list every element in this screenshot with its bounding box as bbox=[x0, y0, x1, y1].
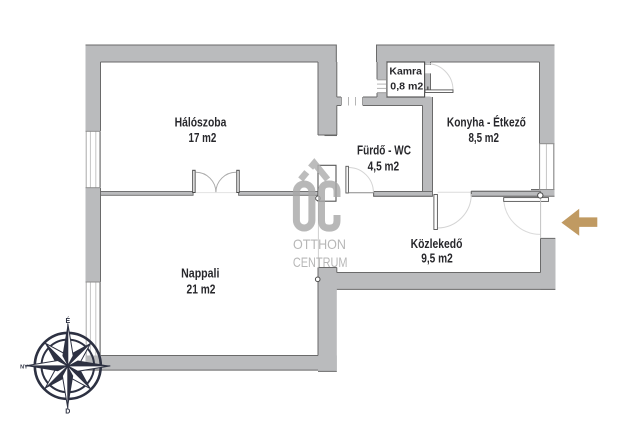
svg-text:Nappali: Nappali bbox=[181, 267, 219, 281]
svg-text:CENTRUM: CENTRUM bbox=[293, 254, 348, 270]
svg-text:9,5 m2: 9,5 m2 bbox=[421, 251, 453, 265]
svg-text:D: D bbox=[65, 409, 70, 416]
svg-text:NY: NY bbox=[20, 365, 28, 371]
svg-text:8,5 m2: 8,5 m2 bbox=[468, 131, 499, 145]
svg-text:Konyha - Étkező: Konyha - Étkező bbox=[447, 115, 526, 130]
svg-text:17 m2: 17 m2 bbox=[189, 131, 217, 145]
svg-text:21 m2: 21 m2 bbox=[187, 282, 216, 296]
svg-text:4,5 m2: 4,5 m2 bbox=[368, 160, 400, 174]
svg-text:0,8 m2: 0,8 m2 bbox=[390, 81, 423, 92]
svg-text:Közlekedő: Közlekedő bbox=[411, 237, 463, 251]
svg-text:Kamra: Kamra bbox=[389, 67, 422, 78]
svg-text:Fürdő - WC: Fürdő - WC bbox=[357, 143, 411, 157]
svg-text:É: É bbox=[65, 316, 70, 325]
svg-text:OTTHON: OTTHON bbox=[293, 236, 346, 252]
svg-text:Hálószoba: Hálószoba bbox=[175, 116, 228, 130]
